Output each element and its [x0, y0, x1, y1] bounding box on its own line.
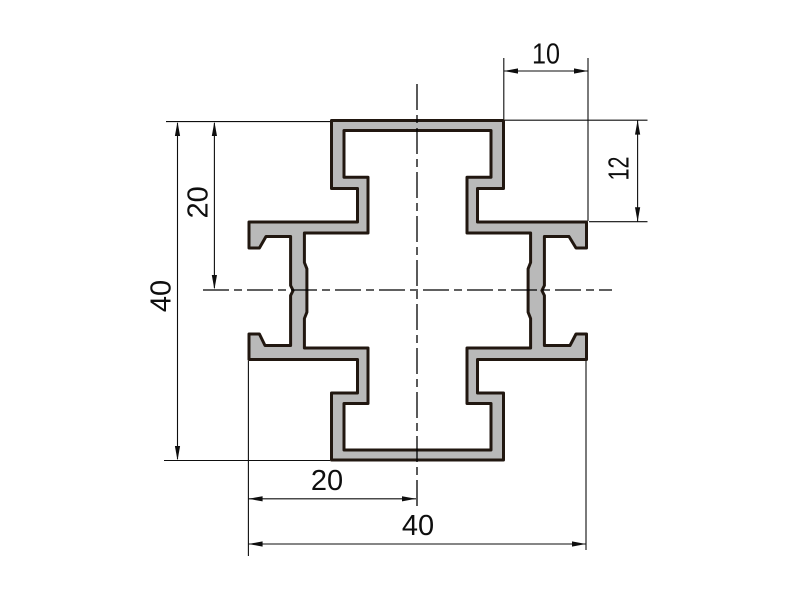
svg-text:10: 10: [532, 39, 560, 71]
svg-text:40: 40: [402, 510, 434, 542]
svg-text:40: 40: [146, 280, 178, 312]
svg-text:20: 20: [182, 186, 214, 218]
svg-text:12: 12: [604, 157, 636, 181]
svg-text:20: 20: [311, 465, 343, 497]
